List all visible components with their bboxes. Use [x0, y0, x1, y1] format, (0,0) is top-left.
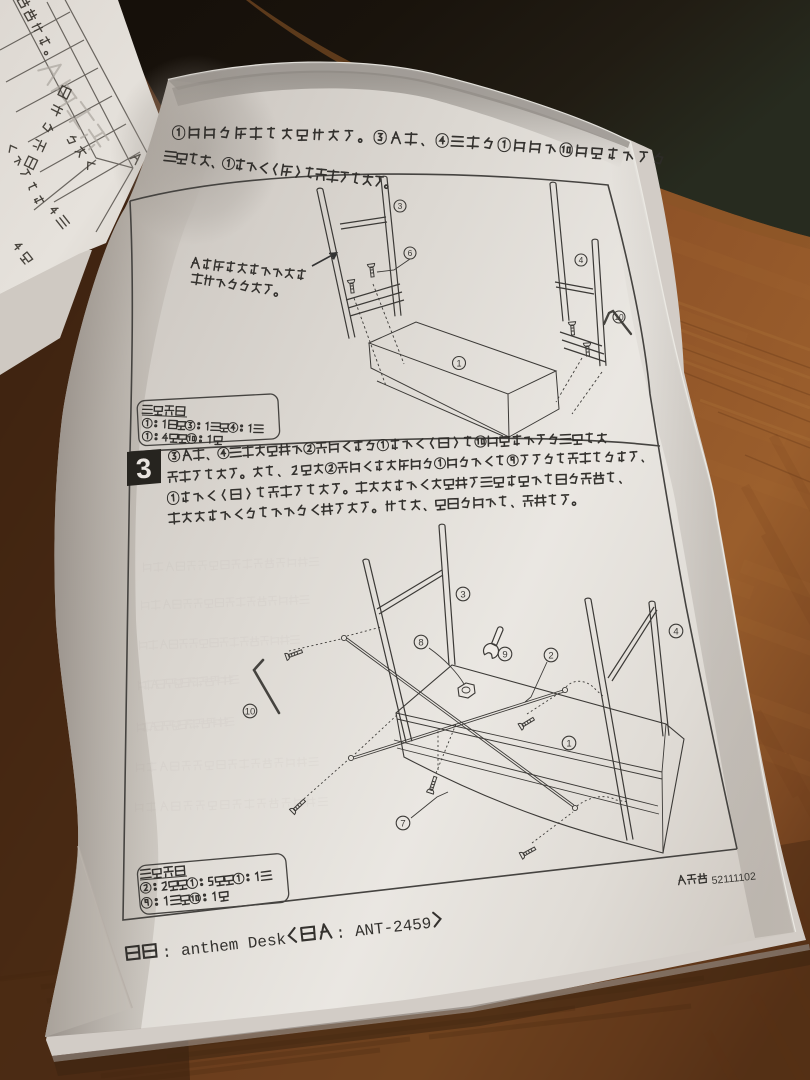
svg-text:8: 8: [418, 637, 423, 648]
svg-text:9: 9: [502, 649, 507, 660]
svg-text:10: 10: [245, 706, 256, 717]
svg-text:2: 2: [548, 650, 553, 661]
svg-text:10: 10: [614, 312, 624, 322]
svg-text:4: 4: [579, 255, 584, 265]
svg-text:1: 1: [566, 738, 571, 749]
svg-text:7: 7: [400, 818, 405, 829]
svg-text:3: 3: [460, 589, 465, 600]
svg-text:3: 3: [135, 453, 153, 485]
svg-text:3: 3: [398, 201, 403, 211]
svg-text:4: 4: [673, 626, 678, 637]
svg-text:1: 1: [456, 358, 461, 368]
svg-text:6: 6: [408, 248, 413, 258]
